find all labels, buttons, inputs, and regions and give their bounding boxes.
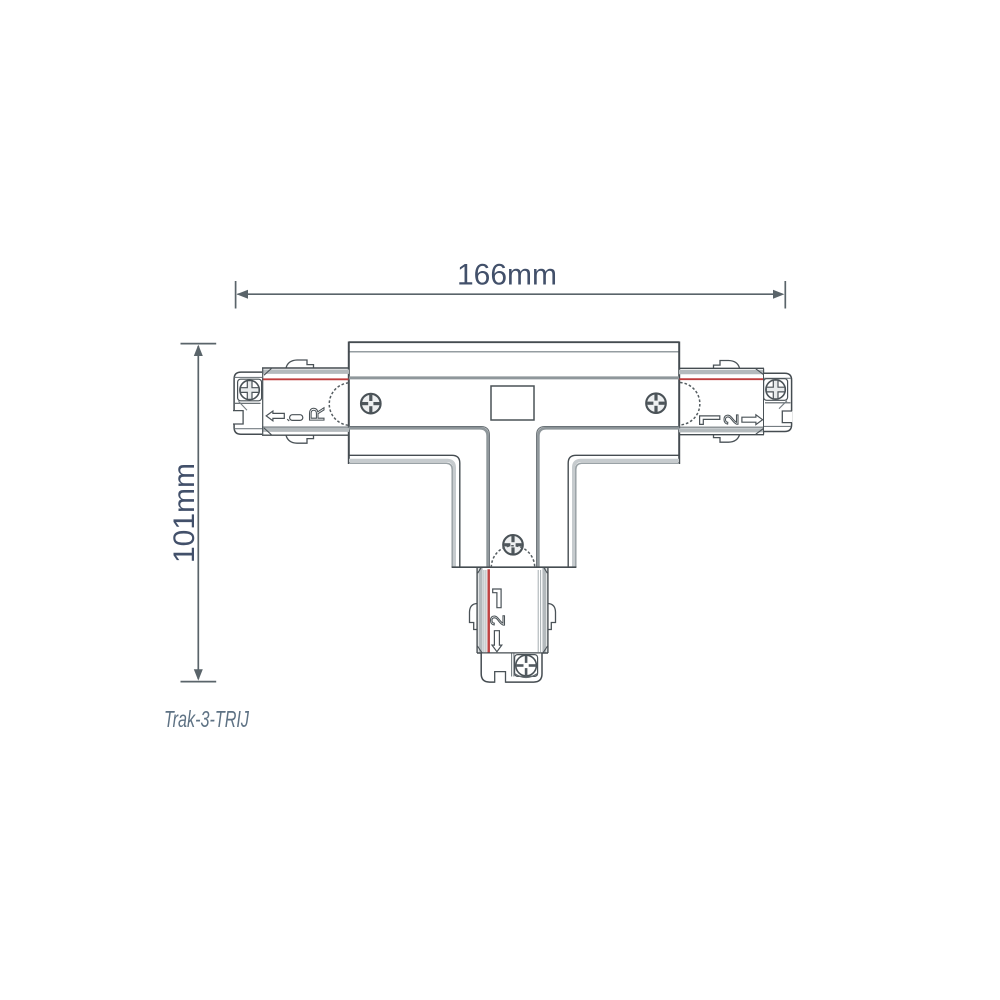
svg-text:2: 2	[720, 414, 743, 425]
svg-text:R: R	[306, 407, 329, 422]
svg-text:101mm: 101mm	[168, 463, 201, 563]
svg-text:2: 2	[487, 615, 510, 626]
svg-text:166mm: 166mm	[457, 259, 557, 292]
svg-text:Trak-3-TRIJ: Trak-3-TRIJ	[164, 706, 249, 732]
